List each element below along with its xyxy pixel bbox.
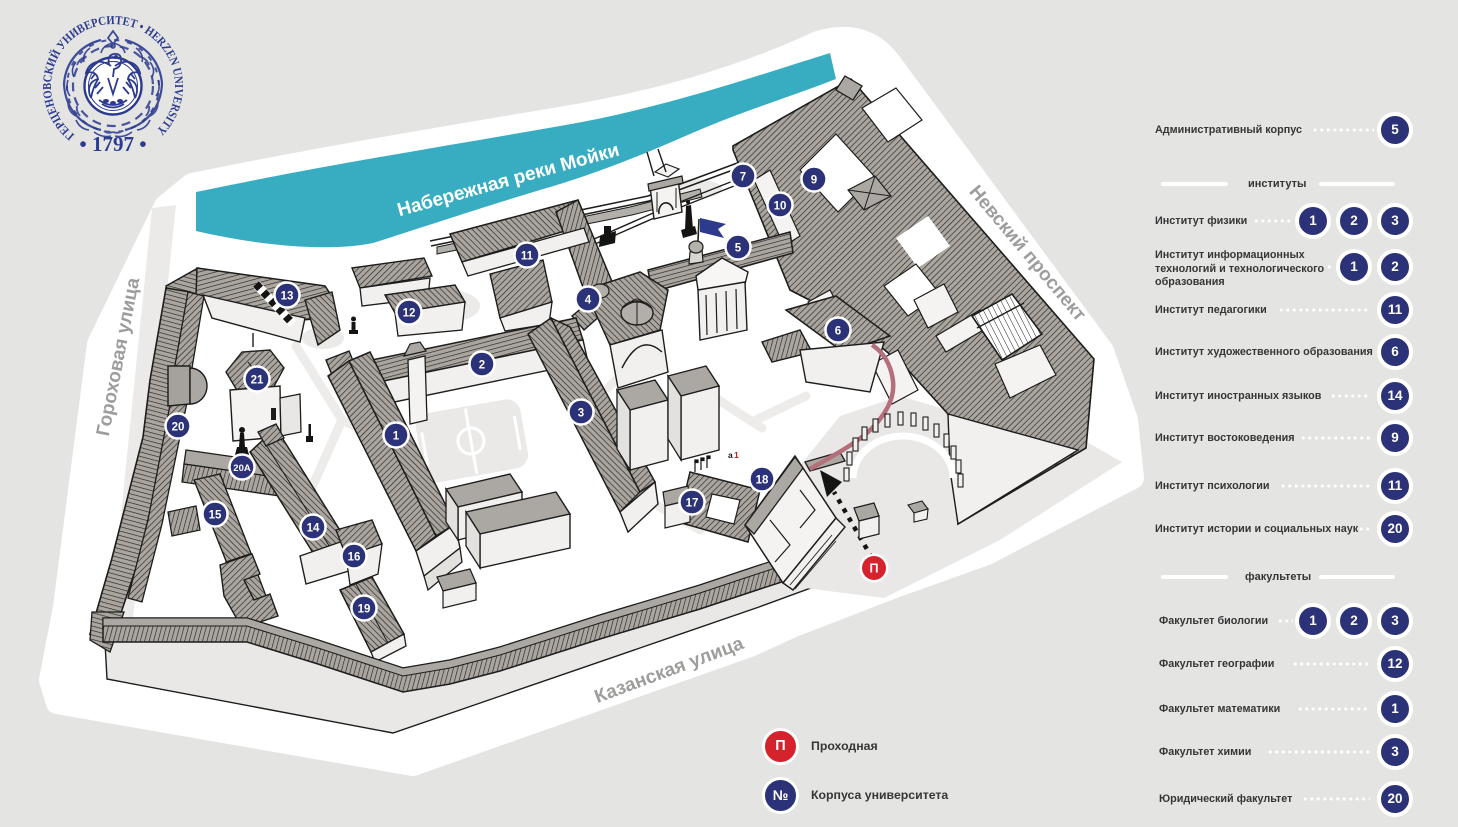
svg-text:21: 21	[251, 374, 264, 386]
svg-text:П: П	[870, 562, 879, 576]
svg-text:11: 11	[521, 250, 534, 262]
svg-text:19: 19	[358, 603, 371, 615]
svg-text:17: 17	[686, 497, 699, 509]
svg-text:6: 6	[835, 325, 841, 337]
svg-text:• 1797 •: • 1797 •	[79, 132, 146, 156]
svg-text:18: 18	[756, 474, 769, 486]
svg-text:20: 20	[172, 421, 185, 433]
svg-text:7: 7	[740, 171, 746, 183]
svg-text:16: 16	[348, 551, 361, 563]
svg-text:3: 3	[578, 407, 584, 419]
svg-text:9: 9	[811, 174, 817, 186]
svg-text:1: 1	[393, 430, 400, 442]
svg-text:13: 13	[281, 290, 294, 302]
svg-text:1: 1	[734, 450, 739, 460]
svg-text:14: 14	[307, 522, 320, 534]
svg-text:10: 10	[774, 200, 787, 212]
svg-text:5: 5	[735, 242, 742, 254]
svg-text:12: 12	[403, 307, 416, 319]
svg-text:15: 15	[209, 509, 222, 521]
svg-text:4: 4	[585, 294, 592, 306]
svg-text:2: 2	[479, 359, 485, 371]
svg-text:a: a	[728, 450, 733, 460]
svg-text:20А: 20А	[233, 463, 251, 474]
